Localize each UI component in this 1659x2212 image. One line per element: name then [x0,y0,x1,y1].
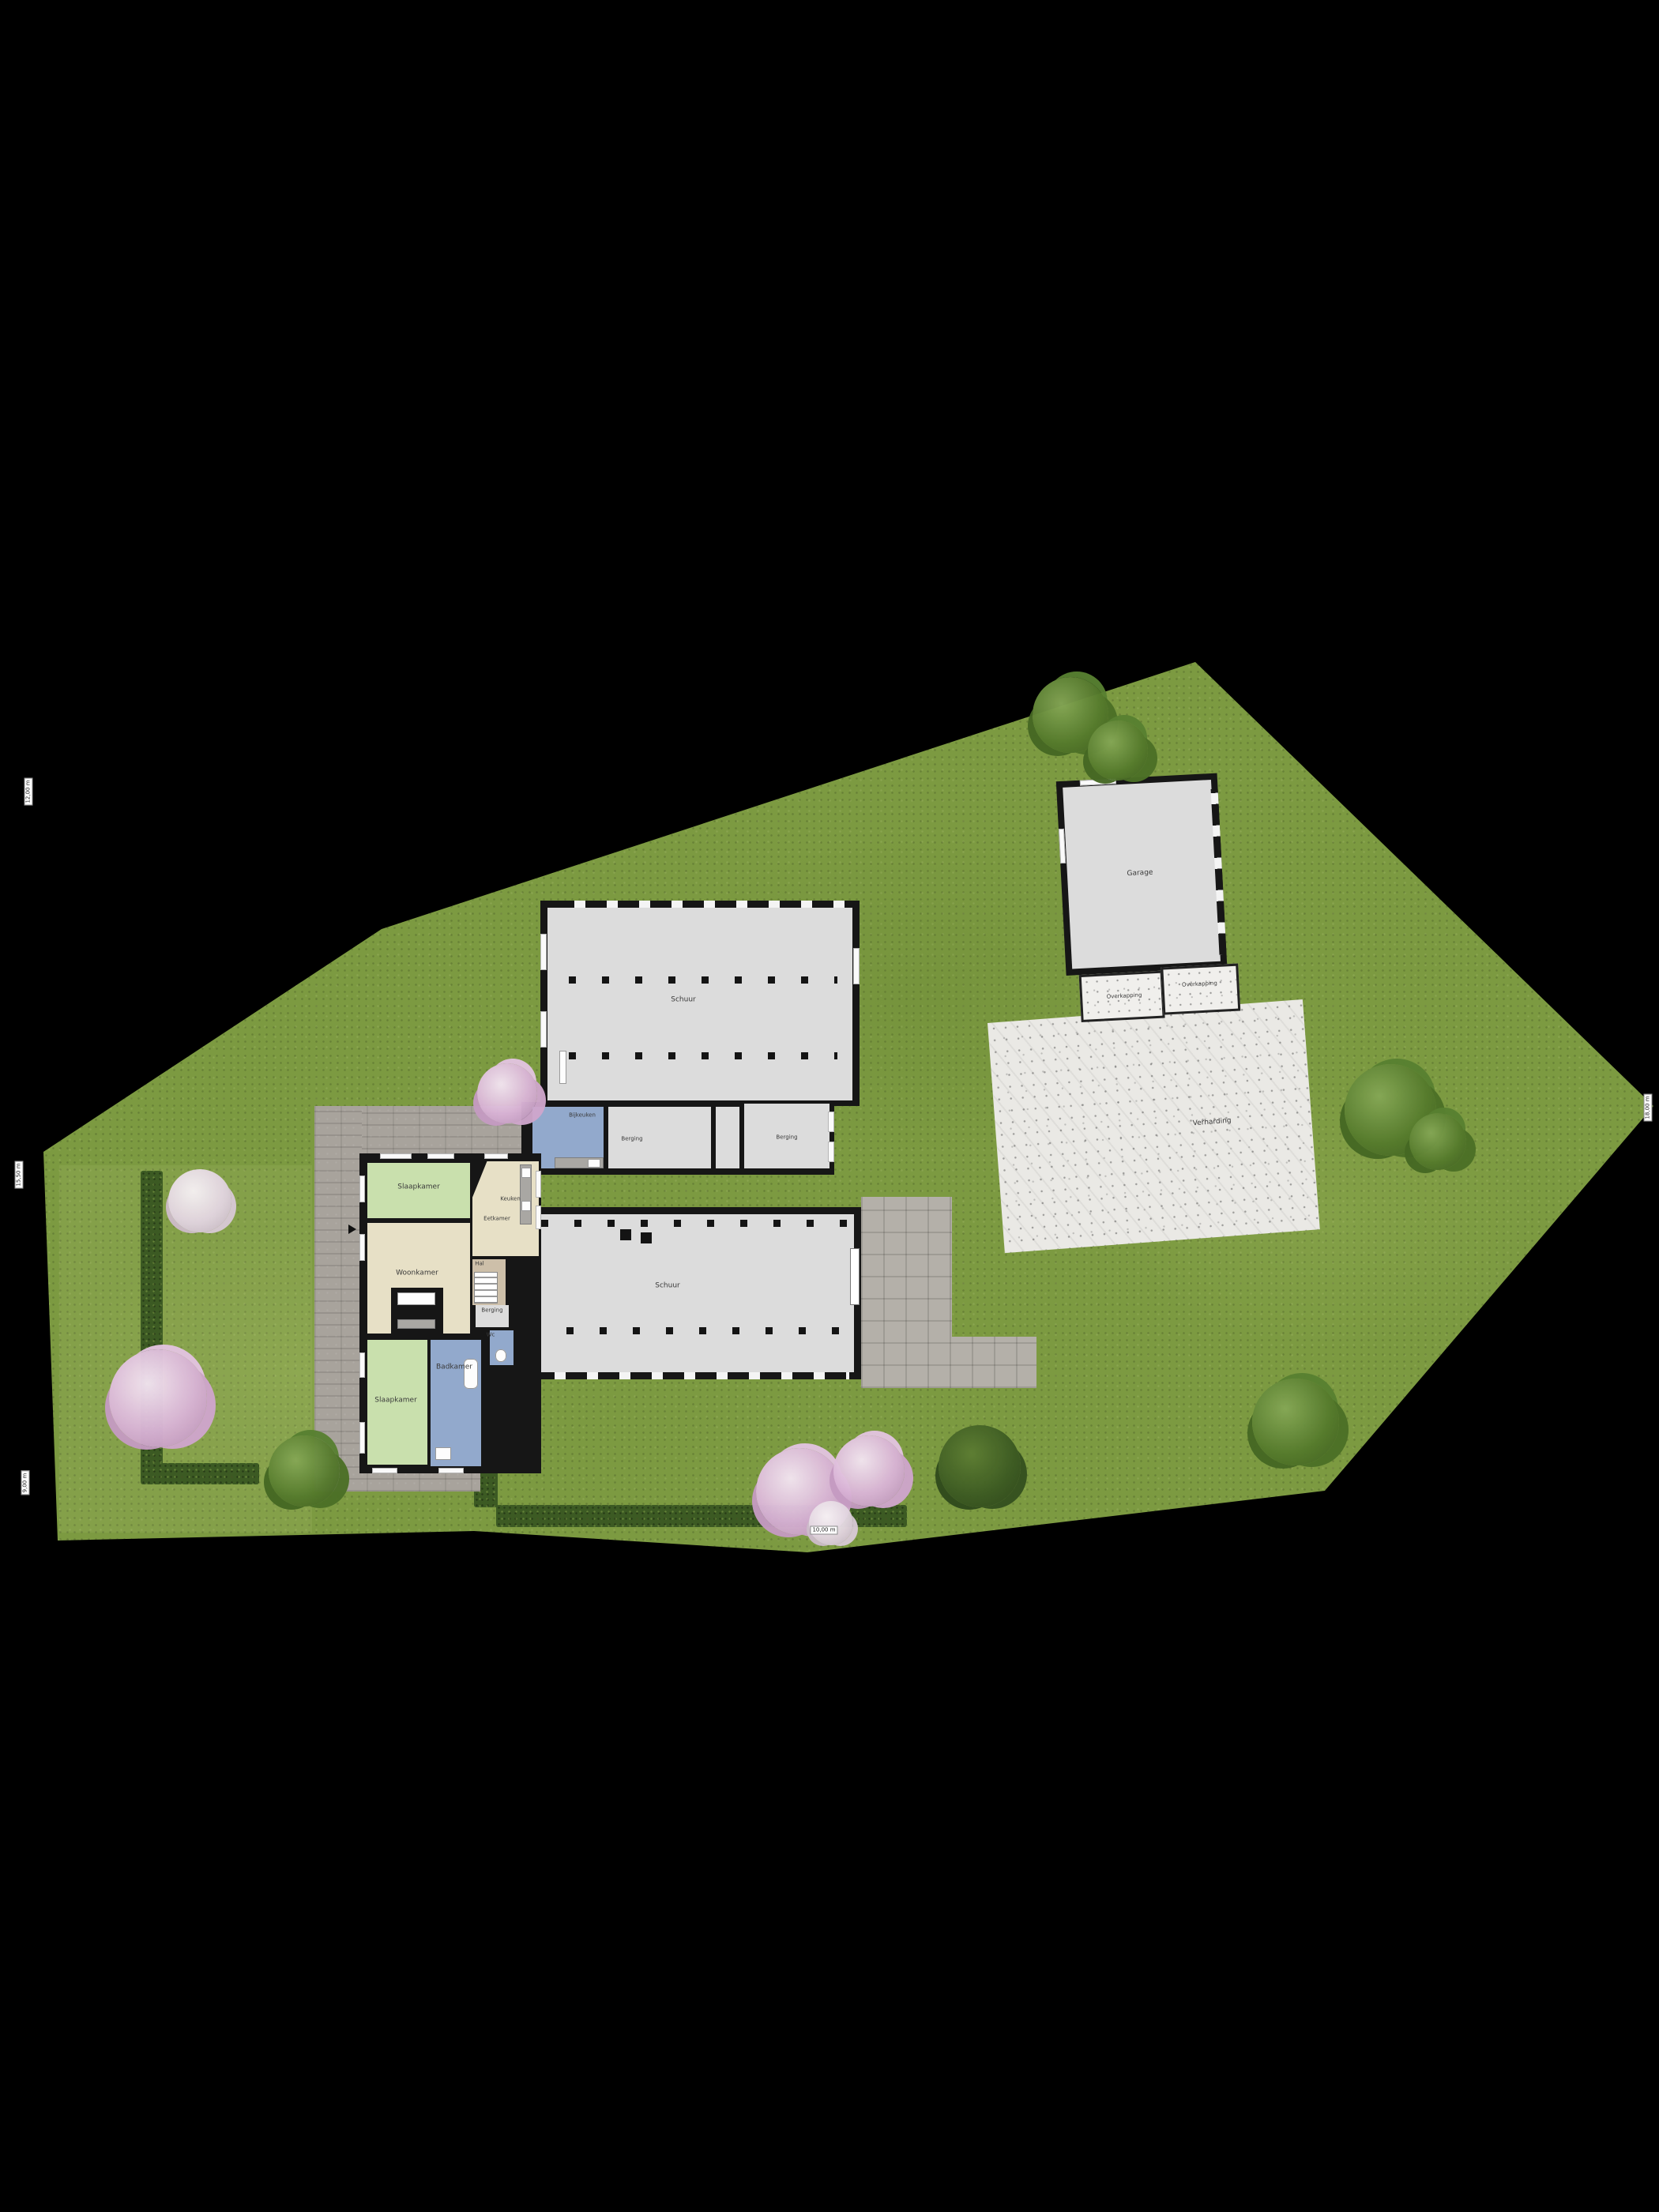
barn-lower-posts-row1 [541,1220,849,1227]
dimension-bottom: 10,00 m [810,1526,837,1535]
green-tree-top-2 [1088,720,1148,781]
radiator [559,1051,566,1084]
garage-building: Garage Overkapping Overkapping [1051,768,1245,1024]
kitchen-stove [521,1168,531,1178]
barn-post-large-2 [641,1232,652,1243]
hall-label: Hal [475,1262,484,1267]
dimension-left-bottom: 9,00 m [21,1471,30,1495]
window-west-1 [359,1176,365,1202]
blossom-tree-bottom-2 [833,1435,905,1507]
bathroom-label: Badkamer [436,1364,472,1371]
barn-upper-window-west2 [540,1011,547,1048]
paved-yard-label: Verharding [1193,1118,1232,1128]
dining-label: Eetkamer [483,1217,510,1222]
scullery-label: Bijkeuken [569,1113,596,1119]
dimension-left-top: 12,00 m [24,777,33,805]
shower [435,1447,451,1460]
barn-upper-window-east [853,948,860,984]
fireplace-niche [397,1292,435,1305]
barn-upper-window-wall-north [553,901,847,908]
barn-upper-label: Schuur [671,997,695,1004]
hedge-left-bottom [141,1463,259,1484]
barn-upper-posts-row2 [569,1052,837,1059]
paved-yard: Verharding [987,999,1320,1253]
kitchen-label: Keuken [500,1197,521,1202]
bedroom1-label: Slaapkamer [397,1184,440,1191]
site-plan: Verharding Garage Overkapping Overkappin… [0,0,1659,2212]
kitchen-sink [521,1201,531,1211]
bedroom2-label: Slaapkamer [374,1398,417,1405]
storage2-label: Berging [776,1135,797,1141]
courtyard-paving-left [314,1106,362,1492]
garage-label: Garage [1127,870,1153,878]
dimension-right: 18,00 m [1644,1093,1653,1121]
entrance-arrow-icon [348,1224,356,1234]
barn-upper-floor [547,908,852,1100]
fireplace-hearth [397,1319,435,1329]
barn-lower-posts-row2 [533,1327,849,1334]
window-north-1 [380,1153,412,1159]
storage2-window-2 [828,1142,834,1162]
staircase [474,1272,498,1303]
wc-label: Wc [487,1333,495,1338]
barn-post-large-1 [620,1229,631,1240]
barn-lower-label: Schuur [655,1283,679,1290]
window-west-3 [359,1352,365,1378]
white-tree-bottom [809,1501,853,1545]
dimension-left-middle: 15,50 m [15,1161,24,1188]
storage-house-label: Berging [481,1308,502,1314]
window-west-4 [359,1422,365,1454]
window-east-1 [536,1171,541,1198]
terrace-apron [861,1337,1036,1388]
toilet [495,1349,506,1362]
scullery-sink [588,1159,600,1168]
green-tree-right-2 [1409,1113,1466,1170]
window-east-2 [536,1206,541,1229]
passage [716,1107,739,1168]
white-tree-left [168,1169,231,1232]
green-tree-bottom-right [1252,1379,1339,1465]
barn-upper-window-west1 [540,934,547,970]
window-south-2 [438,1468,464,1473]
canopy-right-floor [1161,964,1240,1015]
barn-lower-floor [525,1214,854,1372]
window-north-3 [484,1153,508,1159]
barn-upper-posts-row1 [569,976,837,984]
living-room-label: Woonkamer [396,1270,438,1277]
barn-upper [540,901,860,1106]
chimney-block [391,1288,443,1335]
barn-lower-window-wall-south [533,1372,849,1379]
barn-sliding-door [850,1248,860,1305]
window-north-2 [427,1153,454,1159]
blossom-tree-near-house [477,1063,537,1123]
dark-tree-bottom [939,1425,1021,1507]
blossom-tree-left [109,1349,207,1447]
barn-lower [517,1207,861,1379]
storage2-window-1 [828,1112,834,1132]
storage1-label: Berging [621,1137,642,1142]
window-south-1 [372,1468,397,1473]
green-tree-left-bottom [269,1435,340,1507]
window-west-2 [359,1234,365,1261]
